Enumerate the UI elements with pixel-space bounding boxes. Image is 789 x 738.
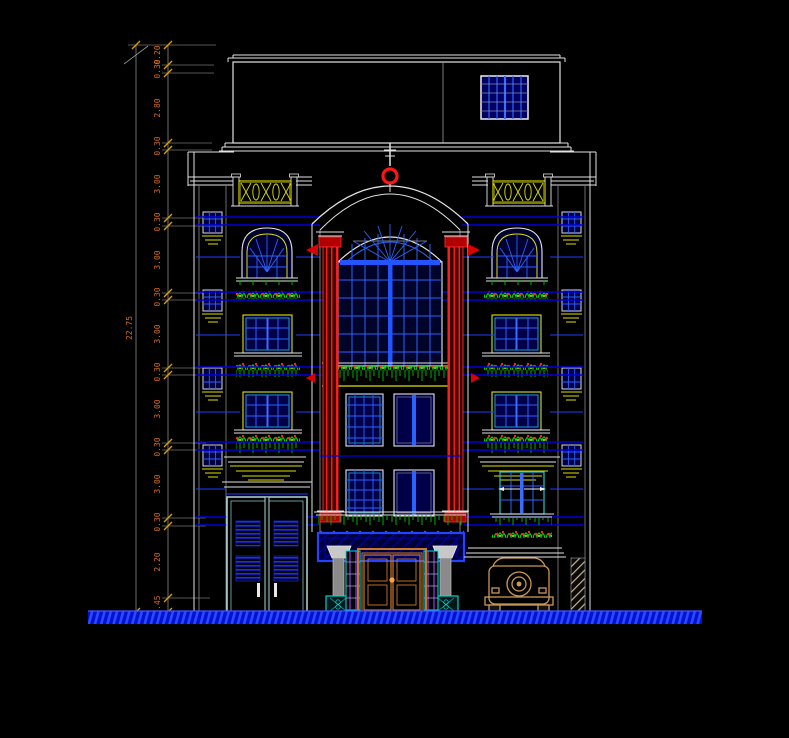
cad-canvas: 0.20 0.30 2.80 0.30 3.00 0.30 3.00 0.30 … xyxy=(0,0,789,738)
wall-section-hatch xyxy=(571,558,585,611)
dim-label: 3.00 xyxy=(153,399,162,418)
side-strip-windows xyxy=(202,212,223,477)
dim-label: 3.00 xyxy=(153,250,162,269)
center-windows xyxy=(320,394,462,516)
red-column-right xyxy=(442,232,480,522)
right-tower xyxy=(472,152,596,611)
entrance xyxy=(314,512,468,613)
overall-dimension: 22.75 xyxy=(125,316,134,340)
right-ground-floor xyxy=(464,472,585,611)
window-grid-left xyxy=(346,394,383,446)
window-plain-right xyxy=(394,470,434,516)
ground-line xyxy=(88,611,702,624)
parking-slab xyxy=(464,548,566,557)
dim-label: 3.00 xyxy=(153,474,162,493)
grand-arch-window xyxy=(322,224,460,386)
dim-label: 0.30 xyxy=(153,437,162,456)
dim-label: 2.20 xyxy=(153,552,162,571)
tower-arched-window xyxy=(236,228,300,300)
service-door xyxy=(222,482,312,612)
right-window-row4 xyxy=(498,472,546,514)
elevation-drawing: 0.20 0.30 2.80 0.30 3.00 0.30 3.00 0.30 … xyxy=(0,0,789,738)
flower-box xyxy=(492,518,552,538)
window-grid-left xyxy=(346,470,383,516)
corbel-molding xyxy=(230,466,302,480)
tower-window xyxy=(243,315,292,353)
window-plain-right xyxy=(394,394,434,446)
parapet-lattice xyxy=(231,174,299,206)
dim-label: 3.00 xyxy=(153,324,162,343)
parked-car xyxy=(485,558,553,611)
door-handle xyxy=(257,583,260,597)
dim-label: 0.30 xyxy=(153,59,162,78)
dim-label: 0.30 xyxy=(153,212,162,231)
dim-label: 0.30 xyxy=(153,512,162,531)
penthouse-cornice xyxy=(219,143,574,151)
ring-finial xyxy=(383,169,397,183)
penthouse-window xyxy=(481,76,528,119)
flower-box xyxy=(236,434,300,455)
extension-lines xyxy=(162,65,214,598)
dim-label: 2.80 xyxy=(153,98,162,117)
center-mullion xyxy=(388,262,393,366)
dimension-chain: 0.20 0.30 2.80 0.30 3.00 0.30 3.00 0.30 … xyxy=(124,41,216,616)
door-handle xyxy=(274,583,277,597)
flower-box xyxy=(236,280,300,300)
dim-label: 0.30 xyxy=(153,136,162,155)
tower-window xyxy=(243,392,292,430)
door-knob xyxy=(389,577,394,582)
dim-label: 0.30 xyxy=(153,287,162,306)
flower-box xyxy=(324,366,458,384)
penthouse-block xyxy=(219,55,574,151)
dimension-ticks xyxy=(132,41,172,616)
dim-label: 3.00 xyxy=(153,174,162,193)
dim-label: 0.30 xyxy=(153,362,162,381)
flower-box xyxy=(318,515,464,533)
